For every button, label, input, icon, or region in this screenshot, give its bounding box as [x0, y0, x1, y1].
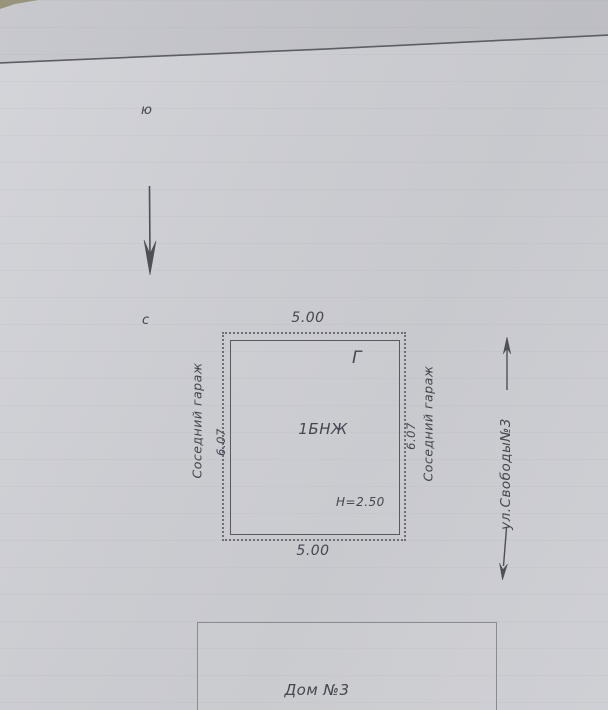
height-note: Н=2.50 — [336, 495, 385, 509]
dimension-left: 6.07 — [214, 420, 228, 464]
dimension-right: 6.07 — [404, 414, 418, 458]
garage-label: 1БНЖ — [290, 420, 356, 438]
neighbor-garage-right-label: Соседний гараж — [421, 363, 436, 485]
dimension-top: 5.00 — [283, 310, 333, 326]
compass-south-label: ю — [141, 103, 152, 118]
dimension-bottom: 5.00 — [288, 543, 338, 559]
house-label: Дом №3 — [280, 681, 354, 699]
street-label: ул.Свободы№3 — [498, 418, 514, 530]
corner-mark: Г — [352, 348, 362, 368]
neighbor-garage-left-label: Соседний гараж — [190, 360, 205, 482]
upper-page-strip — [0, 0, 608, 63]
north-arrow-icon — [144, 186, 156, 275]
street-arrow-down-icon — [500, 528, 508, 580]
compass-north-label: с — [142, 313, 150, 328]
street-arrow-up-icon — [503, 337, 511, 390]
scanned-site-plan-page: ю с 5.00 5.00 6.07 6.07 Г 1БНЖ Н=2.50 Со… — [0, 0, 608, 710]
